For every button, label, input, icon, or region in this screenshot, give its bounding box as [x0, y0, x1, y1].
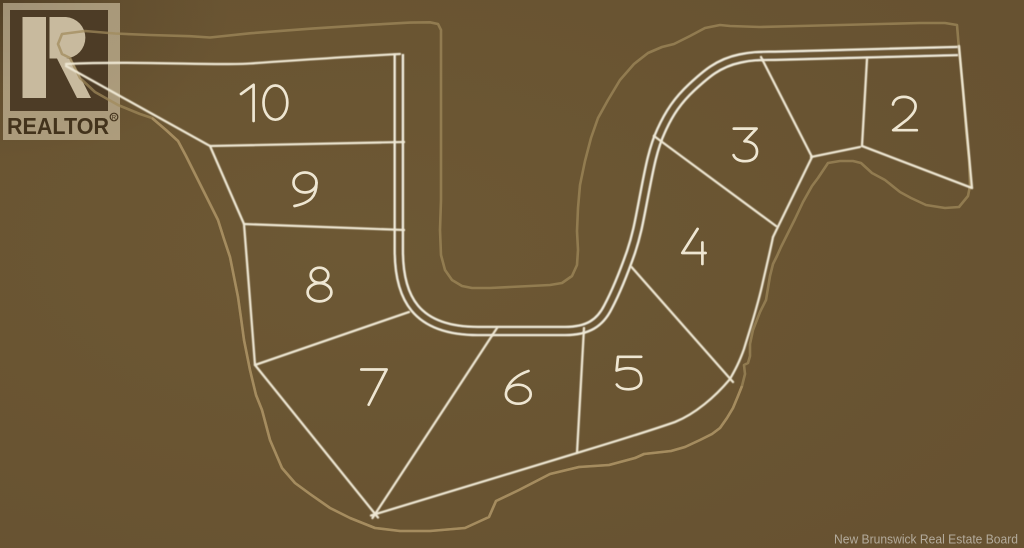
svg-text:R: R — [112, 116, 117, 122]
svg-text:New Brunswick Real Estate Boar: New Brunswick Real Estate Board — [834, 533, 1018, 547]
svg-text:REALTOR: REALTOR — [7, 113, 109, 139]
